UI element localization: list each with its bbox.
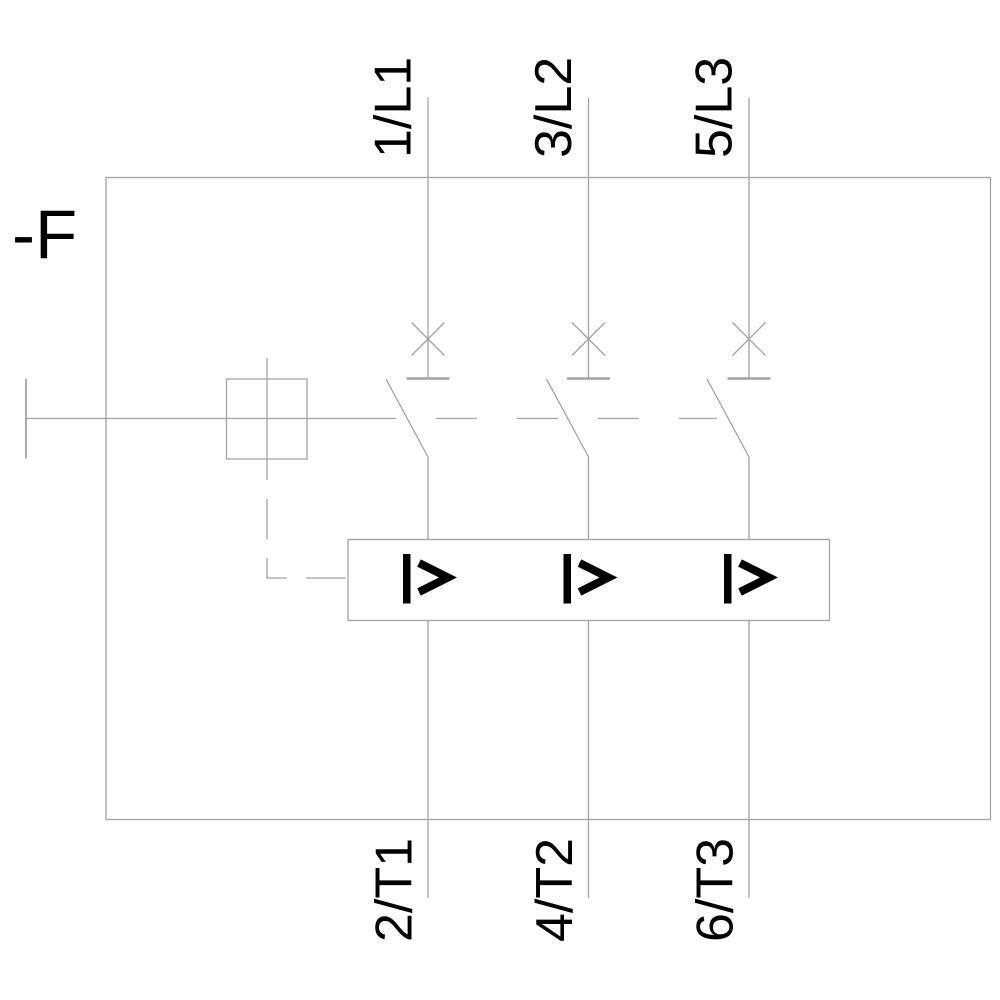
pole-3-contact-blade	[707, 379, 749, 540]
pole-2-contact-blade	[547, 379, 589, 540]
enclosure-outline	[106, 178, 991, 820]
pole-2	[547, 98, 611, 899]
device-designation-label: -F	[12, 196, 77, 273]
schematic-page: -F 1/L1 3/L2 5/L3 2/T1 4/T2 6/T3	[0, 0, 1000, 1000]
circuit-breaker-schematic: -F 1/L1 3/L2 5/L3 2/T1 4/T2 6/T3	[0, 0, 1000, 1000]
terminal-label-bottom-3: 6/T3	[687, 838, 745, 942]
terminal-label-top-1: 1/L1	[365, 57, 423, 158]
trip-i-bar	[403, 554, 411, 604]
trip-linkage-dashed-path	[267, 480, 348, 578]
pole-1-contact-blade	[386, 379, 428, 540]
pole-3	[707, 98, 771, 899]
trip-i-bar	[724, 554, 732, 604]
pole-1	[386, 98, 450, 899]
terminal-label-top-3: 5/L3	[686, 57, 744, 158]
wiring-group	[26, 98, 991, 899]
terminal-label-bottom-1: 2/T1	[366, 838, 424, 942]
terminal-label-bottom-2: 4/T2	[526, 838, 584, 942]
trip-i-bar	[564, 554, 572, 604]
terminal-label-top-2: 3/L2	[525, 57, 583, 158]
